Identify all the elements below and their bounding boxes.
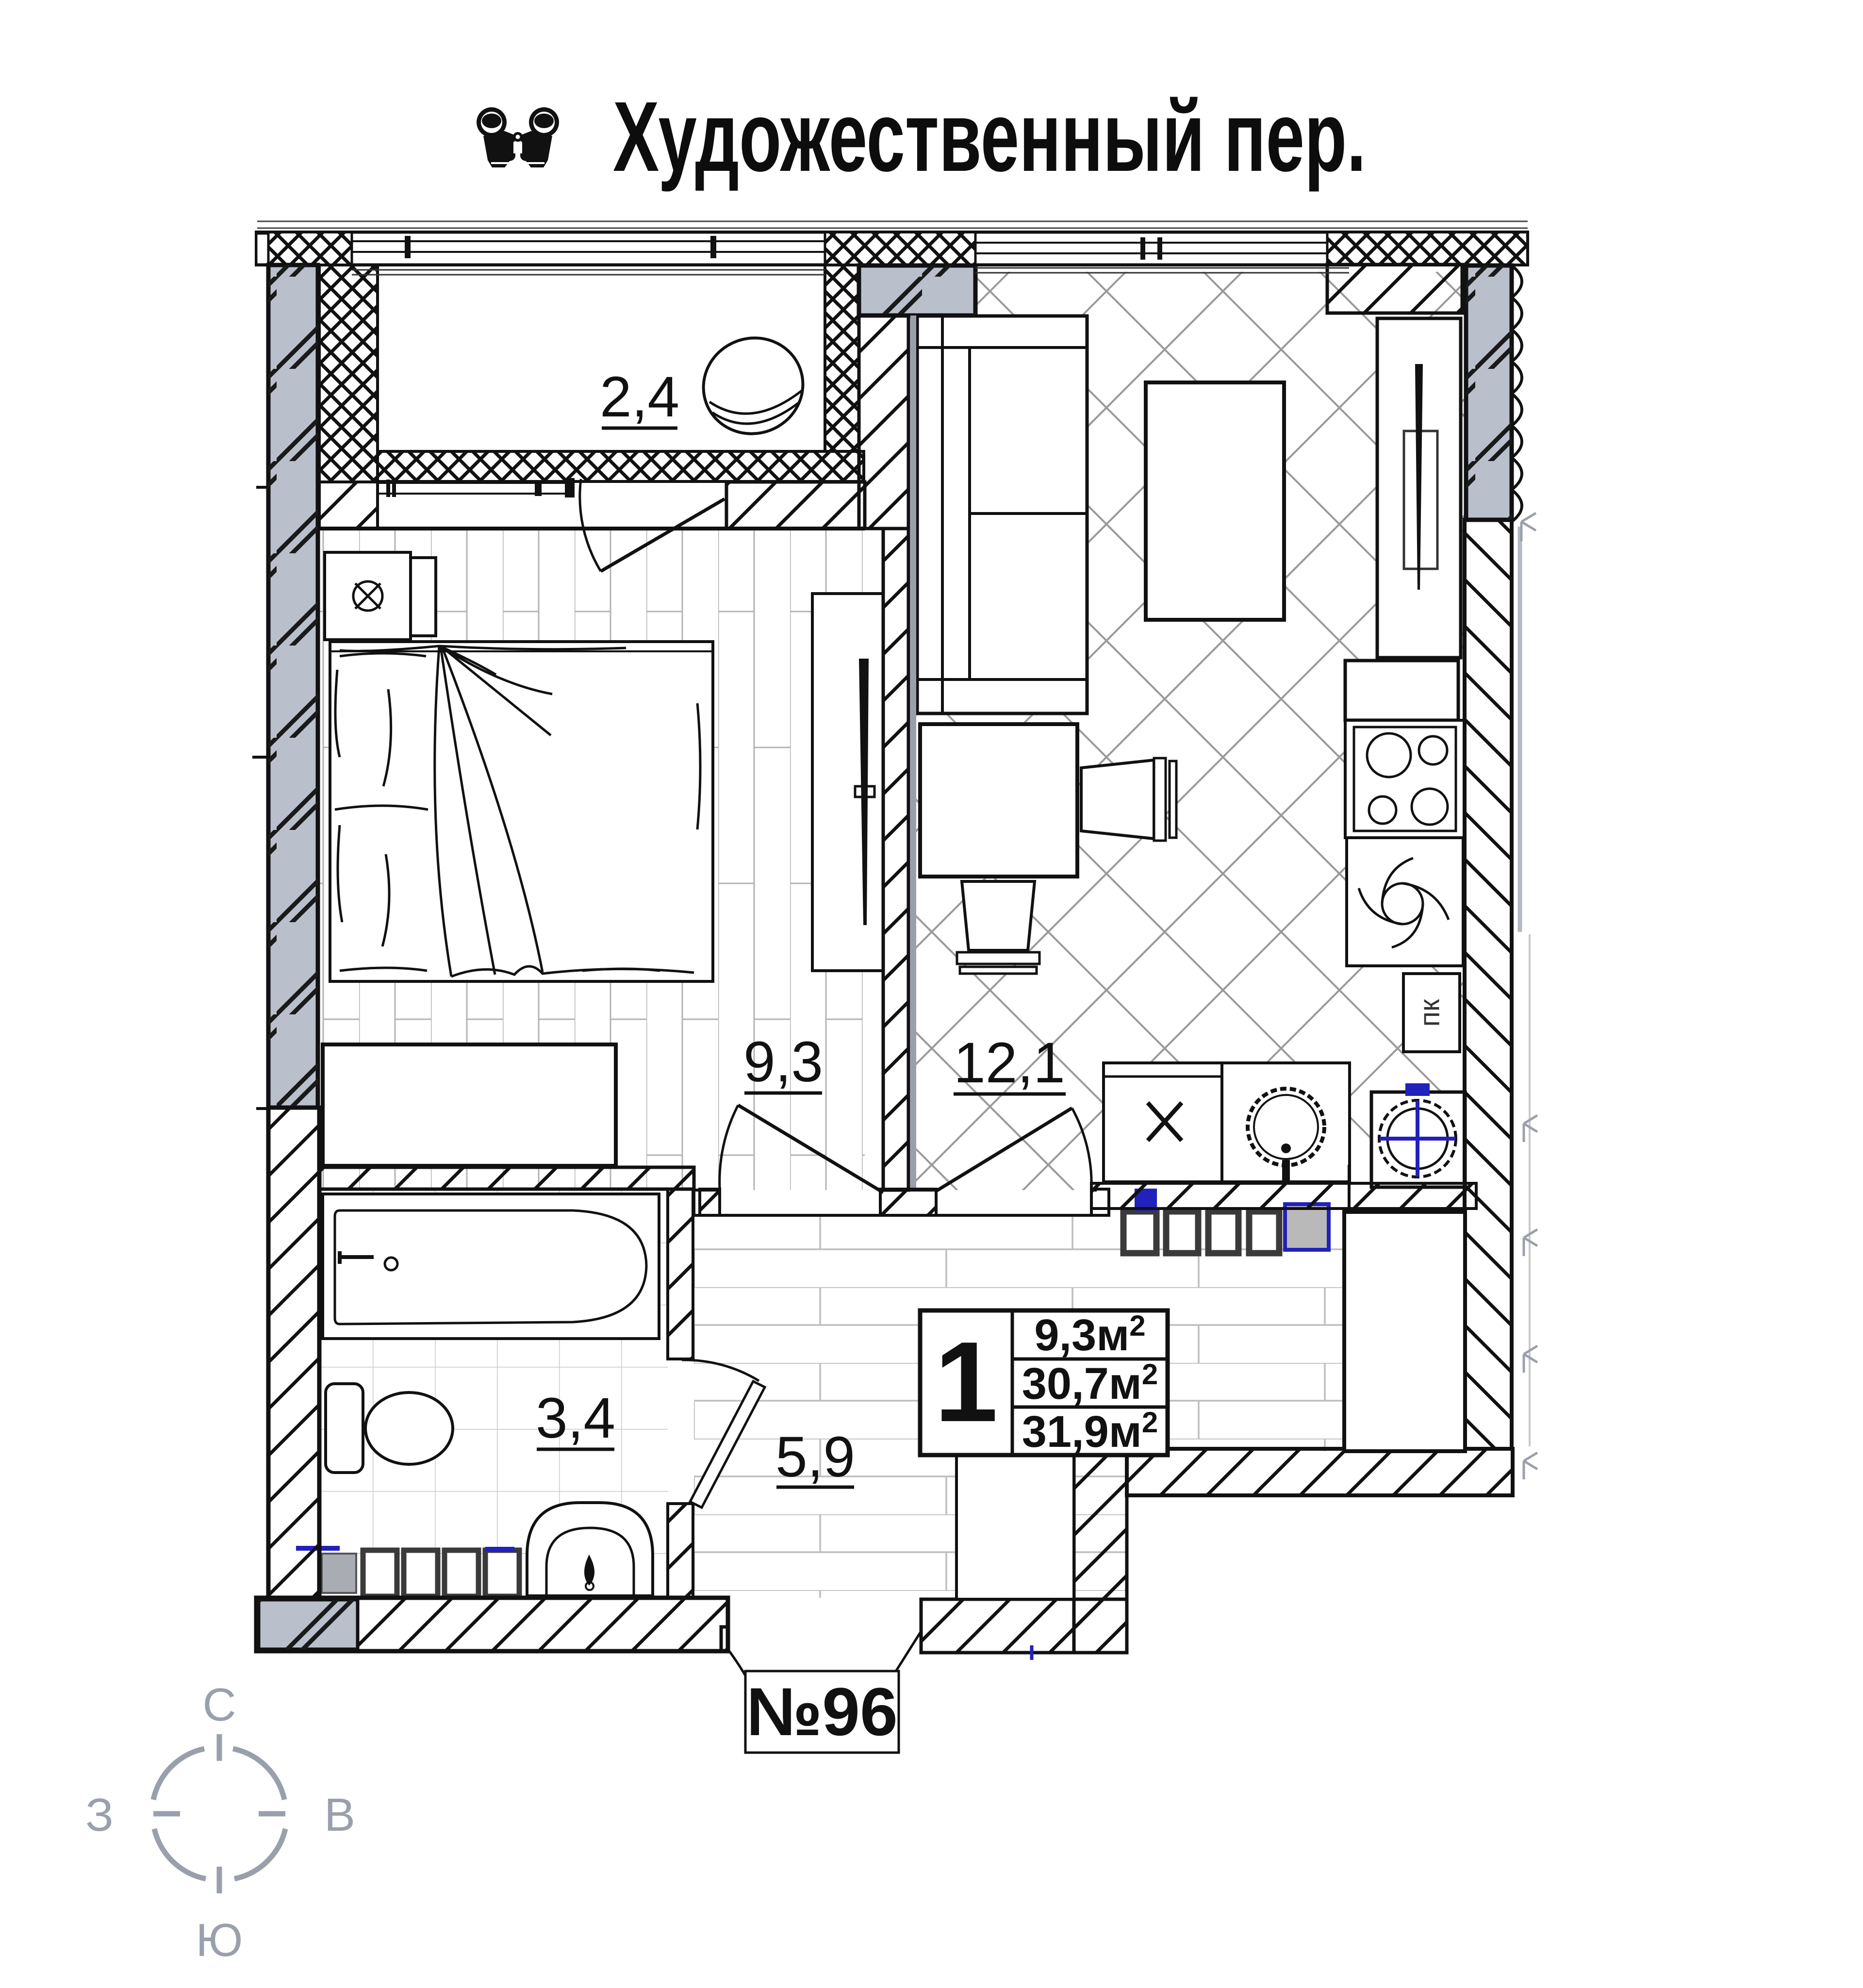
svg-text:№96: №96 xyxy=(746,1673,898,1750)
svg-text:12,1: 12,1 xyxy=(954,1031,1065,1095)
svg-text:Ю: Ю xyxy=(196,1914,243,1966)
svg-text:3,4: 3,4 xyxy=(536,1386,615,1450)
svg-text:Художественный пер.: Художественный пер. xyxy=(613,81,1366,192)
svg-text:9,3м2: 9,3м2 xyxy=(1034,1309,1145,1360)
svg-text:З: З xyxy=(85,1789,114,1841)
svg-text:31,9м2: 31,9м2 xyxy=(1022,1406,1158,1457)
svg-text:пк: пк xyxy=(1414,999,1445,1027)
svg-text:9,3: 9,3 xyxy=(743,1030,823,1094)
svg-text:В: В xyxy=(324,1789,355,1841)
svg-text:1: 1 xyxy=(935,1318,998,1445)
svg-text:5,9: 5,9 xyxy=(775,1425,855,1489)
svg-text:30,7м2: 30,7м2 xyxy=(1022,1358,1158,1408)
svg-text:2,4: 2,4 xyxy=(600,365,679,429)
svg-text:С: С xyxy=(202,1679,236,1731)
